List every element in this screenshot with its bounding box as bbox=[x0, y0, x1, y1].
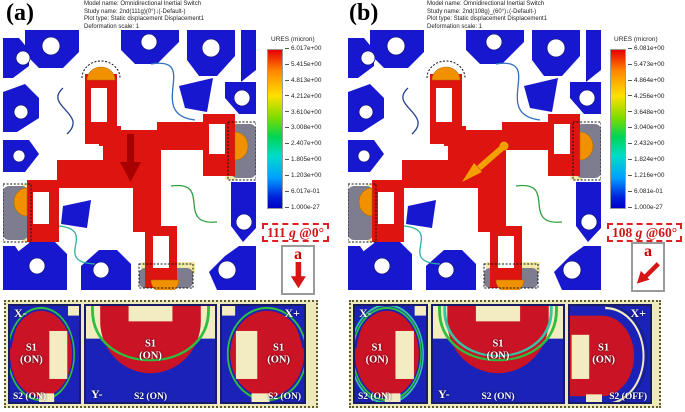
contact-state-strip: X- S1(ON) S2 (ON) Y- S1(ON) S2 (ON) bbox=[4, 300, 318, 408]
accel-angle: @60° bbox=[646, 225, 677, 240]
study-name: Study name: 2nd(108g)_(60°)↓(-Default-) bbox=[427, 9, 547, 17]
legend-tick-label: 4.212e+00 bbox=[285, 93, 321, 100]
legend-tick-label: 3.610e+00 bbox=[285, 109, 321, 116]
s2-state-label: S2 (OFF) bbox=[609, 392, 647, 402]
axis-label: X- bbox=[14, 306, 27, 321]
direction-indicator: a bbox=[281, 245, 315, 295]
figure-canvas: { "figure": { "colors": { "frame_blue": … bbox=[0, 0, 685, 412]
legend-tick-label: 3.008e+00 bbox=[285, 124, 321, 131]
plot-type: Plot type: Static displacement Displacem… bbox=[427, 16, 547, 24]
legend-tick-label: 2.407e+00 bbox=[285, 140, 321, 147]
panel-b: (b) Model name: Omnidirectional Inertial… bbox=[343, 0, 685, 412]
axis-label: Y- bbox=[91, 387, 103, 402]
legend-tick-label: 6.017e+00 bbox=[285, 45, 321, 52]
legend-tick-label: 4.864e+00 bbox=[628, 77, 664, 84]
s2-state-label: S2 (ON) bbox=[13, 392, 46, 402]
contact-panel-x-plus: X+ S1(ON) S2 (OFF) bbox=[568, 304, 652, 404]
contact-panel-x-plus: X+ S1(ON) S2 (ON) bbox=[220, 304, 306, 404]
acceleration-annotation: 108 g @60° bbox=[607, 223, 682, 242]
legend-tick-label: 1.216e+00 bbox=[628, 172, 664, 179]
s1-state-label: S1(ON) bbox=[366, 342, 389, 366]
accel-unit: g bbox=[636, 225, 643, 240]
panel-a: (a) Model name: Omnidirectional Inertial… bbox=[0, 0, 342, 412]
down-left-arrow-icon bbox=[635, 259, 661, 286]
direction-indicator: a bbox=[631, 242, 665, 292]
simulation-header: Model name: Omnidirectional Inertial Swi… bbox=[84, 1, 204, 31]
legend-tick-label: 1.824e+00 bbox=[628, 156, 664, 163]
legend-tick-label: 1.000e-27 bbox=[285, 204, 321, 211]
color-legend: URES (micron) 6.081e+005.473e+004.864e+0… bbox=[603, 36, 683, 218]
direction-letter: a bbox=[633, 244, 663, 259]
color-legend: URES (micron) 6.017e+005.415e+004.813e+0… bbox=[260, 36, 340, 218]
contact-panel-x-minus: X- S1(ON) S2 (ON) bbox=[353, 304, 428, 404]
accel-value: 111 bbox=[267, 225, 286, 240]
accel-unit: g bbox=[289, 225, 296, 240]
legend-tick-label: 5.415e+00 bbox=[285, 61, 321, 68]
s1-state-label: S1(ON) bbox=[487, 338, 510, 362]
legend-tick-label: 4.256e+00 bbox=[628, 93, 664, 100]
acceleration-annotation: 111 g @0° bbox=[262, 223, 329, 242]
s1-state-label: S1(ON) bbox=[592, 342, 615, 366]
axis-label: Y- bbox=[438, 387, 450, 402]
fea-displacement-plot bbox=[3, 30, 256, 290]
fea-displacement-plot bbox=[348, 30, 601, 290]
legend-tick-label: 6.017e-01 bbox=[285, 188, 321, 195]
s1-state-label: S1(ON) bbox=[267, 342, 290, 366]
panel-label: (a) bbox=[6, 0, 34, 27]
down-arrow-icon bbox=[285, 262, 311, 289]
contact-state-strip: X- S1(ON) S2 (ON) Y- S1(ON) S2 (ON) bbox=[349, 300, 661, 408]
contact-panel-y-minus: Y- S1(ON) S2 (ON) bbox=[84, 304, 217, 404]
s2-state-label: S2 (ON) bbox=[482, 392, 515, 402]
legend-title: URES (micron) bbox=[271, 36, 315, 43]
s1-state-label: S1(ON) bbox=[139, 338, 162, 362]
axis-label: X+ bbox=[284, 306, 300, 321]
legend-tick-label: 6.081e+00 bbox=[628, 45, 664, 52]
legend-tick-label: 5.473e+00 bbox=[628, 61, 664, 68]
s2-state-label: S2 (ON) bbox=[134, 392, 167, 402]
study-name: Study name: 2nd(111g)(0°)↓(-Default-) bbox=[84, 9, 204, 17]
legend-ticks: 6.017e+005.415e+004.813e+004.212e+003.61… bbox=[285, 45, 321, 211]
legend-tick-label: 6.081e-01 bbox=[628, 188, 664, 195]
legend-colorbar bbox=[267, 49, 283, 209]
accel-value: 108 bbox=[612, 225, 632, 240]
simulation-header: Model name: Omnidirectional Inertial Swi… bbox=[427, 1, 547, 31]
direction-letter: a bbox=[283, 247, 313, 262]
s2-state-label: S2 (ON) bbox=[268, 392, 301, 402]
axis-label: X- bbox=[359, 306, 372, 321]
legend-title: URES (micron) bbox=[614, 36, 658, 43]
legend-tick-label: 1.000e-27 bbox=[628, 204, 664, 211]
contact-panel-x-minus: X- S1(ON) S2 (ON) bbox=[8, 304, 81, 404]
axis-label: X+ bbox=[630, 306, 646, 321]
panel-label: (b) bbox=[349, 0, 378, 27]
model-name: Model name: Omnidirectional Inertial Swi… bbox=[84, 1, 204, 9]
legend-tick-label: 2.432e+00 bbox=[628, 140, 664, 147]
legend-tick-label: 3.648e+00 bbox=[628, 109, 664, 116]
accel-angle: @0° bbox=[299, 225, 324, 240]
legend-tick-label: 3.040e+00 bbox=[628, 124, 664, 131]
plot-type: Plot type: Static displacement Displacem… bbox=[84, 16, 204, 24]
s1-state-label: S1(ON) bbox=[20, 342, 43, 366]
model-name: Model name: Omnidirectional Inertial Swi… bbox=[427, 1, 547, 9]
contact-panel-y-minus: Y- S1(ON) S2 (ON) bbox=[431, 304, 565, 404]
legend-colorbar bbox=[610, 49, 626, 209]
s2-state-label: S2 (ON) bbox=[358, 392, 391, 402]
legend-tick-label: 1.203e+00 bbox=[285, 172, 321, 179]
legend-tick-label: 1.805e+00 bbox=[285, 156, 321, 163]
legend-tick-label: 4.813e+00 bbox=[285, 77, 321, 84]
legend-ticks: 6.081e+005.473e+004.864e+004.256e+003.64… bbox=[628, 45, 664, 211]
